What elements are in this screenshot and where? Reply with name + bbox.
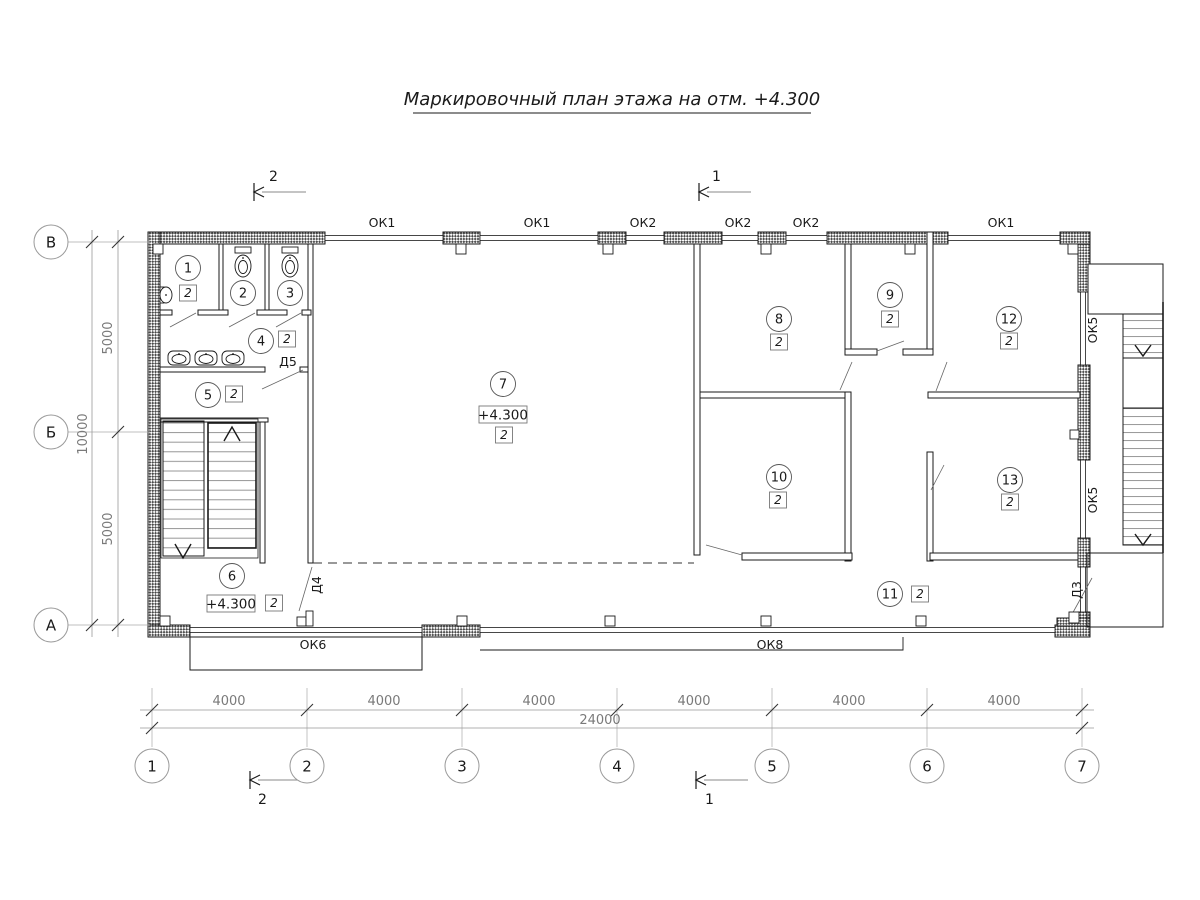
room-number: 2 bbox=[239, 287, 247, 302]
title-block: Маркировочный план этажа на отм. +4.300 bbox=[404, 89, 820, 113]
grid-axis-label: 1 bbox=[147, 757, 157, 775]
room-number: 6 bbox=[228, 570, 236, 585]
window-label: ОК8 bbox=[757, 637, 784, 652]
room-type-badge: 2 bbox=[774, 493, 782, 507]
room-type-badge: 2 bbox=[500, 428, 508, 442]
floor-plan-drawing: Маркировочный план этажа на отм. +4.300 bbox=[0, 0, 1200, 900]
window-label: ОК1 bbox=[988, 215, 1015, 230]
section-mark-2-top: 2 bbox=[254, 169, 306, 201]
page-title: Маркировочный план этажа на отм. +4.300 bbox=[404, 89, 820, 110]
bottom-dimension-system: 4000 4000 4000 4000 4000 4000 24000 1 2 … bbox=[135, 688, 1099, 783]
window-label: ОК2 bbox=[793, 215, 820, 230]
exterior-staircase bbox=[1123, 302, 1163, 553]
room-number: 1 bbox=[184, 262, 192, 277]
section-number: 2 bbox=[269, 169, 278, 185]
room-annotation-2: 2 bbox=[231, 281, 256, 306]
room-annotation-5: 5 2 bbox=[196, 383, 243, 408]
dimension-total: 24000 bbox=[579, 713, 620, 728]
grid-axis-label: 3 bbox=[457, 757, 467, 775]
room-annotation-10: 10 2 bbox=[767, 465, 792, 509]
dimension-value: 4000 bbox=[212, 694, 245, 709]
room-type-badge: 2 bbox=[230, 387, 238, 401]
room-number: 9 bbox=[886, 289, 894, 304]
room-number: 11 bbox=[882, 588, 899, 603]
room-number: 10 bbox=[771, 471, 788, 486]
door-label: Д4 bbox=[309, 576, 324, 594]
dimension-value: 4000 bbox=[987, 694, 1020, 709]
section-number: 2 bbox=[258, 792, 267, 808]
grid-axis-label: А bbox=[46, 616, 57, 634]
section-number: 1 bbox=[712, 169, 721, 185]
grid-axis-label: 2 bbox=[302, 757, 312, 775]
room-annotation-3: 3 bbox=[278, 281, 303, 306]
door-label: Д5 bbox=[279, 354, 297, 369]
interior-staircase bbox=[161, 419, 258, 558]
grid-axis-label: 7 bbox=[1077, 757, 1087, 775]
drawing-sheet: Маркировочный план этажа на отм. +4.300 bbox=[0, 0, 1200, 900]
room-type-badge: 2 bbox=[916, 587, 924, 601]
window-label: ОК6 bbox=[300, 637, 327, 652]
room-type-badge: 2 bbox=[270, 596, 278, 610]
window-label: ОК1 bbox=[369, 215, 396, 230]
room-annotation-7: 7 +4.300 2 bbox=[478, 372, 528, 444]
room-type-badge: 2 bbox=[1005, 334, 1013, 348]
room-type-badge: 2 bbox=[184, 286, 192, 300]
window-bands bbox=[190, 236, 1086, 633]
room-number: 8 bbox=[775, 313, 783, 328]
room-number: 12 bbox=[1001, 313, 1018, 328]
dimension-value: 4000 bbox=[367, 694, 400, 709]
door-labels: Д5 Д4 Д3 bbox=[279, 354, 1084, 599]
window-label: ОК5 bbox=[1085, 487, 1100, 514]
room-number: 13 bbox=[1002, 474, 1019, 489]
room-annotation-11: 11 2 bbox=[878, 582, 929, 607]
toilet-fixture bbox=[235, 247, 251, 277]
urinal-fixture bbox=[160, 287, 172, 303]
door-label: Д3 bbox=[1069, 581, 1084, 599]
room-number: 3 bbox=[286, 287, 294, 302]
window-label: ОК5 bbox=[1085, 317, 1100, 344]
dimension-value: 4000 bbox=[832, 694, 865, 709]
interior-walls bbox=[160, 232, 1080, 563]
room-annotation-13: 13 2 bbox=[998, 468, 1023, 511]
dimension-value: 4000 bbox=[522, 694, 555, 709]
room-number: 4 bbox=[257, 335, 265, 350]
room-type-badge: 2 bbox=[283, 332, 291, 346]
grid-axis-label: Б bbox=[46, 423, 56, 441]
room-annotation-8: 8 2 bbox=[767, 307, 792, 351]
room-number: 7 bbox=[499, 378, 507, 393]
window-label: ОК1 bbox=[524, 215, 551, 230]
dimension-value: 4000 bbox=[677, 694, 710, 709]
sink-fixtures bbox=[168, 351, 244, 365]
window-label: ОК2 bbox=[630, 215, 657, 230]
section-mark-1-top: 1 bbox=[699, 169, 751, 201]
room-type-badge: 2 bbox=[775, 335, 783, 349]
room-number: 5 bbox=[204, 389, 212, 404]
window-label: ОК2 bbox=[725, 215, 752, 230]
section-mark-1-bottom: 1 bbox=[696, 771, 748, 808]
grid-axis-label: 6 bbox=[922, 757, 932, 775]
dimension-value: 5000 bbox=[101, 321, 116, 354]
dimension-total: 10000 bbox=[76, 413, 91, 454]
room-annotation-6: 6 +4.300 2 bbox=[206, 564, 282, 613]
room-type-badge: 2 bbox=[1006, 495, 1014, 509]
left-dimension-system: 10000 5000 5000 В Б А bbox=[34, 225, 150, 642]
grid-axis-label: 4 bbox=[612, 757, 622, 775]
dimension-value: 5000 bbox=[101, 512, 116, 545]
grid-axis-label: В bbox=[46, 233, 56, 251]
room-annotation-12: 12 2 bbox=[997, 307, 1022, 350]
elevation-mark: +4.300 bbox=[206, 596, 256, 612]
toilet-fixture bbox=[282, 247, 298, 277]
elevation-mark: +4.300 bbox=[478, 407, 528, 423]
room-type-badge: 2 bbox=[886, 312, 894, 326]
room-annotation-4: 4 2 bbox=[249, 329, 296, 354]
room-annotation-1: 1 2 bbox=[176, 256, 201, 302]
section-number: 1 bbox=[705, 792, 714, 808]
room-annotation-9: 9 2 bbox=[878, 283, 903, 328]
grid-axis-label: 5 bbox=[767, 757, 777, 775]
